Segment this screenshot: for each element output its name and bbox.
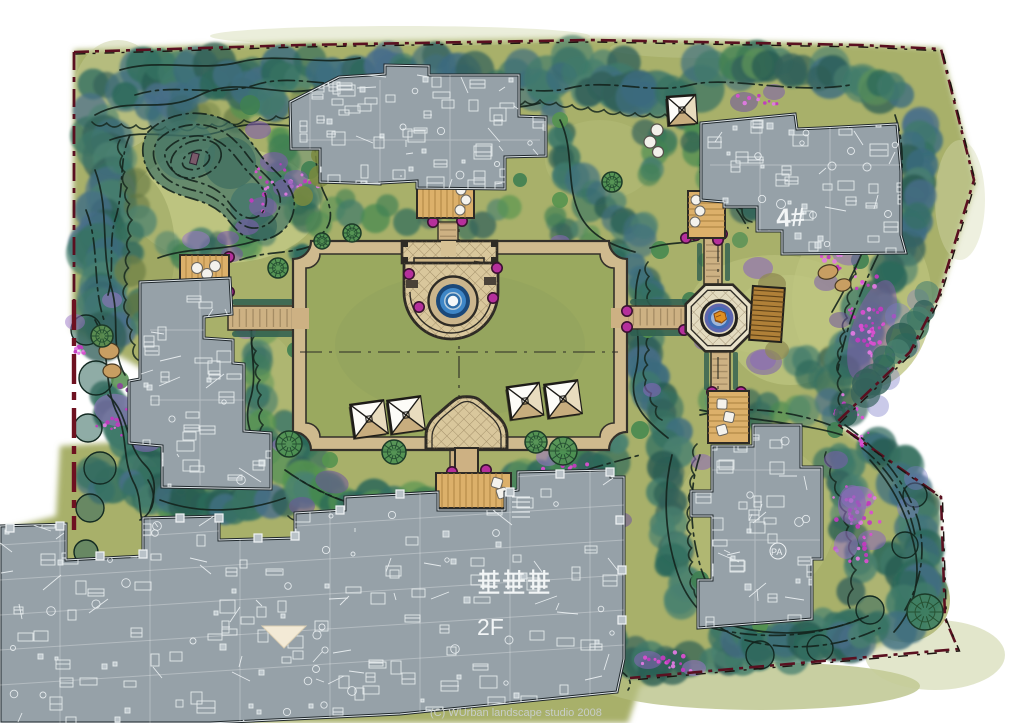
svg-text:2F: 2F xyxy=(477,614,504,640)
svg-text:(C) WUrban landscape studio 20: (C) WUrban landscape studio 2008 xyxy=(430,707,602,719)
svg-text:4#: 4# xyxy=(775,201,806,233)
svg-text:PA: PA xyxy=(771,547,782,557)
